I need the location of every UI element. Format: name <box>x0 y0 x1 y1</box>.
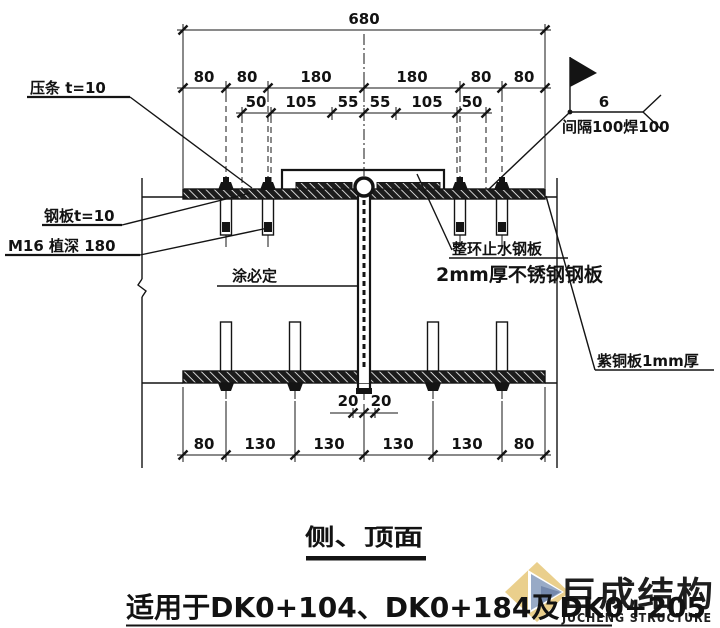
label-waterstop-line1: 整环止水钢板 <box>452 240 543 258</box>
title-underline <box>306 556 426 561</box>
dim-b-130-d: 130 <box>451 435 482 453</box>
dim-b-80-b: 80 <box>514 435 535 453</box>
anchor-bolt <box>452 177 468 247</box>
label-sealant: 涂必定 <box>232 267 277 285</box>
applicability-block: 适用于DK0+104、DK0+184及DK0+205 <box>126 591 706 626</box>
applicability-note: 适用于DK0+104、DK0+184及DK0+205 <box>126 591 706 624</box>
joint-dome-cap <box>355 178 373 196</box>
label-waterstop-line2: 2mm厚不锈钢钢板 <box>436 263 604 286</box>
weld-note: 间隔100焊100 <box>562 118 670 136</box>
center-joint <box>355 178 373 412</box>
anchor-bolt <box>260 177 276 247</box>
dim-105-a: 105 <box>285 93 316 111</box>
callout-copper-plate: 紫铜板1mm厚 <box>546 196 714 370</box>
section-title: 侧、顶面 <box>305 524 423 551</box>
anchor-bolt <box>494 322 510 399</box>
anchor-bolt <box>494 177 510 247</box>
dim-b-80-a: 80 <box>194 435 215 453</box>
drawing-sheet: 680 80 80 180 180 80 80 50 105 55 55 105… <box>0 0 720 628</box>
dim-105-b: 105 <box>411 93 442 111</box>
tunnel-faces <box>138 178 557 468</box>
anchor-bolt <box>425 322 441 399</box>
dim-80-a: 80 <box>194 68 215 86</box>
callout-pressure-strip: 压条 t=10 <box>27 79 252 188</box>
callout-sealant: 涂必定 <box>217 267 358 286</box>
section-title-block: 侧、顶面 <box>305 524 426 561</box>
break-symbol <box>138 279 146 297</box>
label-steel-plate: 钢板t=10 <box>44 207 115 225</box>
dim-180-b: 180 <box>396 68 427 86</box>
dim-total: 680 <box>348 10 379 28</box>
dim-20-left: 20 <box>338 392 359 410</box>
label-pressure-strip: 压条 t=10 <box>30 79 106 97</box>
dim-20-right: 20 <box>371 392 392 410</box>
dim-55-a: 55 <box>338 93 359 111</box>
dim-180-a: 180 <box>300 68 331 86</box>
weld-flag-icon <box>570 57 597 87</box>
dim-80-c: 80 <box>471 68 492 86</box>
label-anchor-bolt: M16 植深 180 <box>8 237 116 255</box>
section-detail-drawing: 680 80 80 180 180 80 80 50 105 55 55 105… <box>0 0 720 628</box>
dim-b-130-c: 130 <box>382 435 413 453</box>
anchor-bolt <box>287 322 303 399</box>
label-copper-plate: 紫铜板1mm厚 <box>597 352 699 370</box>
weld-size: 6 <box>599 93 609 111</box>
dim-80-b: 80 <box>237 68 258 86</box>
dim-80-d: 80 <box>514 68 535 86</box>
dim-50-b: 50 <box>462 93 483 111</box>
dim-b-130-a: 130 <box>244 435 275 453</box>
dim-55-b: 55 <box>370 93 391 111</box>
pressure-strip-left <box>296 183 352 190</box>
dim-50-a: 50 <box>246 93 267 111</box>
anchor-bolt <box>218 322 234 399</box>
dim-b-130-b: 130 <box>313 435 344 453</box>
top-total-dim: 680 <box>177 10 551 35</box>
pressure-strip-right <box>377 183 440 190</box>
